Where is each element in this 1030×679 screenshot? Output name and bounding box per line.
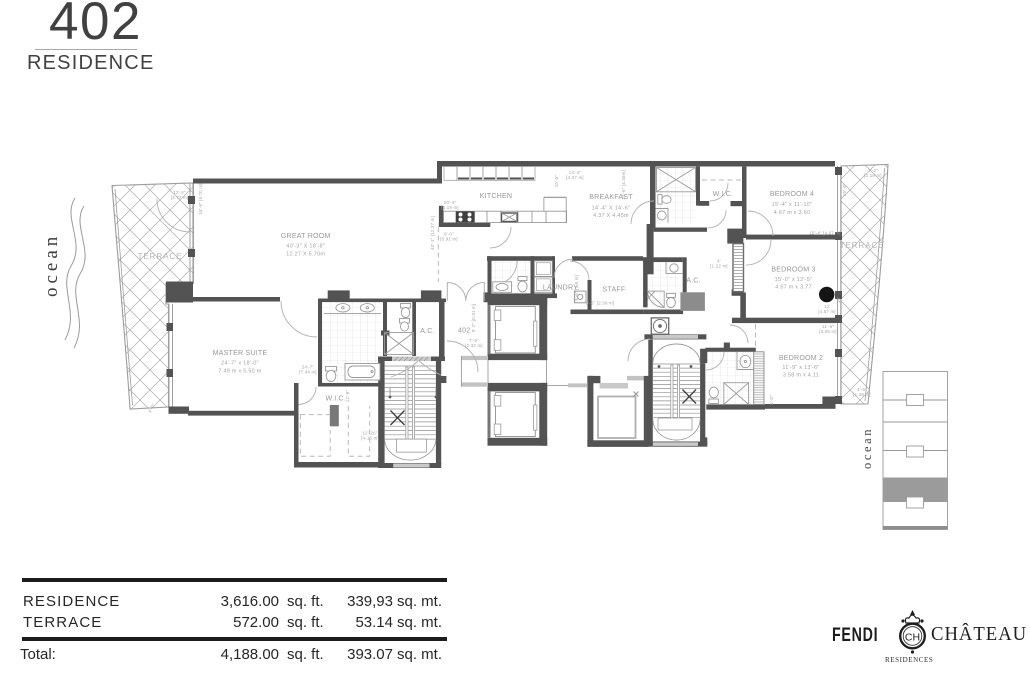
svg-text:MASTER SUITE: MASTER SUITE xyxy=(213,349,268,357)
svg-text:40'-1" [12.27 m]: 40'-1" [12.27 m] xyxy=(430,216,435,250)
svg-text:[2.19 m]: [2.19 m] xyxy=(864,173,881,178)
svg-text:STAFF: STAFF xyxy=(603,286,626,294)
svg-text:A.C.: A.C. xyxy=(420,327,435,335)
svg-text:[6.19 m]: [6.19 m] xyxy=(441,205,458,210)
svg-text:15'-4" [4.67 m]: 15'-4" [4.67 m] xyxy=(809,231,840,236)
svg-text:TERRACE: TERRACE xyxy=(138,252,183,261)
svg-text:40'-3" X 18'-8": 40'-3" X 18'-8" xyxy=(286,244,325,250)
svg-text:15': 15' xyxy=(836,297,841,303)
svg-text:12'-8": 12'-8" xyxy=(345,390,350,403)
svg-text:7.49 m x 5.50 m: 7.49 m x 5.50 m xyxy=(218,369,261,375)
svg-text:BEDROOM 3: BEDROOM 3 xyxy=(771,266,815,274)
svg-text:[0.91 m]: [0.91 m] xyxy=(440,237,457,242)
svg-text:A.C.: A.C. xyxy=(686,277,701,285)
svg-text:15'-4" x 11'-10": 15'-4" x 11'-10" xyxy=(772,202,813,208)
svg-text:4.37 X 4.45m: 4.37 X 4.45m xyxy=(593,213,629,219)
svg-text:14'-4" X 14'-6": 14'-4" X 14'-6" xyxy=(592,206,631,212)
svg-text:[2.32 m]: [2.32 m] xyxy=(465,343,482,348)
svg-text:BEDROOM 4: BEDROOM 4 xyxy=(770,190,814,198)
svg-text:[4-16 m]: [4-16 m] xyxy=(361,436,379,441)
svg-text:W.I.C.: W.I.C. xyxy=(326,395,347,403)
svg-text:402: 402 xyxy=(458,327,470,335)
svg-text:15'-0" x 12'-5": 15'-0" x 12'-5" xyxy=(775,277,813,283)
svg-text:BREAKFAST: BREAKFAST xyxy=(589,193,633,201)
svg-text:11'-9" x 13'-6": 11'-9" x 13'-6" xyxy=(782,365,819,371)
svg-text:10'-5": 10'-5" xyxy=(554,175,559,188)
svg-text:[4.57 m]: [4.57 m] xyxy=(818,309,835,314)
svg-text:[3.09 m]: [3.09 m] xyxy=(819,329,836,334)
svg-text:4.57 m x 3.77: 4.57 m x 3.77 xyxy=(775,285,812,291)
svg-text:5'-0": 5'-0" xyxy=(769,395,774,405)
svg-text:LAUNDRY: LAUNDRY xyxy=(543,284,578,292)
svg-text:[7.44 m]: [7.44 m] xyxy=(299,370,316,375)
svg-text:ocean: ocean xyxy=(860,427,874,469)
svg-text:9'-2" [0.91 m]: 9'-2" [0.91 m] xyxy=(471,304,476,333)
svg-text:GREAT ROOM: GREAT ROOM xyxy=(281,232,331,240)
svg-text:14'-6" [4.45m]: 14'-6" [4.45m] xyxy=(621,170,626,200)
svg-text:12.27 X 5.70m: 12.27 X 5.70m xyxy=(286,252,325,258)
svg-text:TERRACE: TERRACE xyxy=(840,241,885,250)
svg-text:24'-7" x 18'-0": 24'-7" x 18'-0" xyxy=(221,361,259,367)
svg-text:[4.37 m]: [4.37 m] xyxy=(566,175,583,180)
svg-text:W.I.C.: W.I.C. xyxy=(713,190,734,198)
svg-text:18'-8" [5.70 m]: 18'-8" [5.70 m] xyxy=(198,183,203,214)
svg-text:KITCHEN: KITCHEN xyxy=(480,192,513,200)
svg-text:15'-4": 15'-4" xyxy=(842,184,847,197)
svg-text:[1.38 m]: [1.38 m] xyxy=(853,392,870,397)
svg-text:[3.77 m]: [3.77 m] xyxy=(171,195,188,200)
svg-text:[1.22 m]: [1.22 m] xyxy=(710,264,727,269)
svg-text:8'-6" [2.59 m]: 8'-6" [2.59 m] xyxy=(586,301,615,306)
svg-text:ocean: ocean xyxy=(41,233,62,297)
svg-text:3.58 m x 4.11: 3.58 m x 4.11 xyxy=(783,373,819,379)
svg-text:9'-6" [2.9 m]: 9'-6" [2.9 m] xyxy=(574,275,579,301)
svg-text:4.67 m x 3.60: 4.67 m x 3.60 xyxy=(774,210,811,216)
svg-text:BEDROOM 2: BEDROOM 2 xyxy=(779,354,823,362)
